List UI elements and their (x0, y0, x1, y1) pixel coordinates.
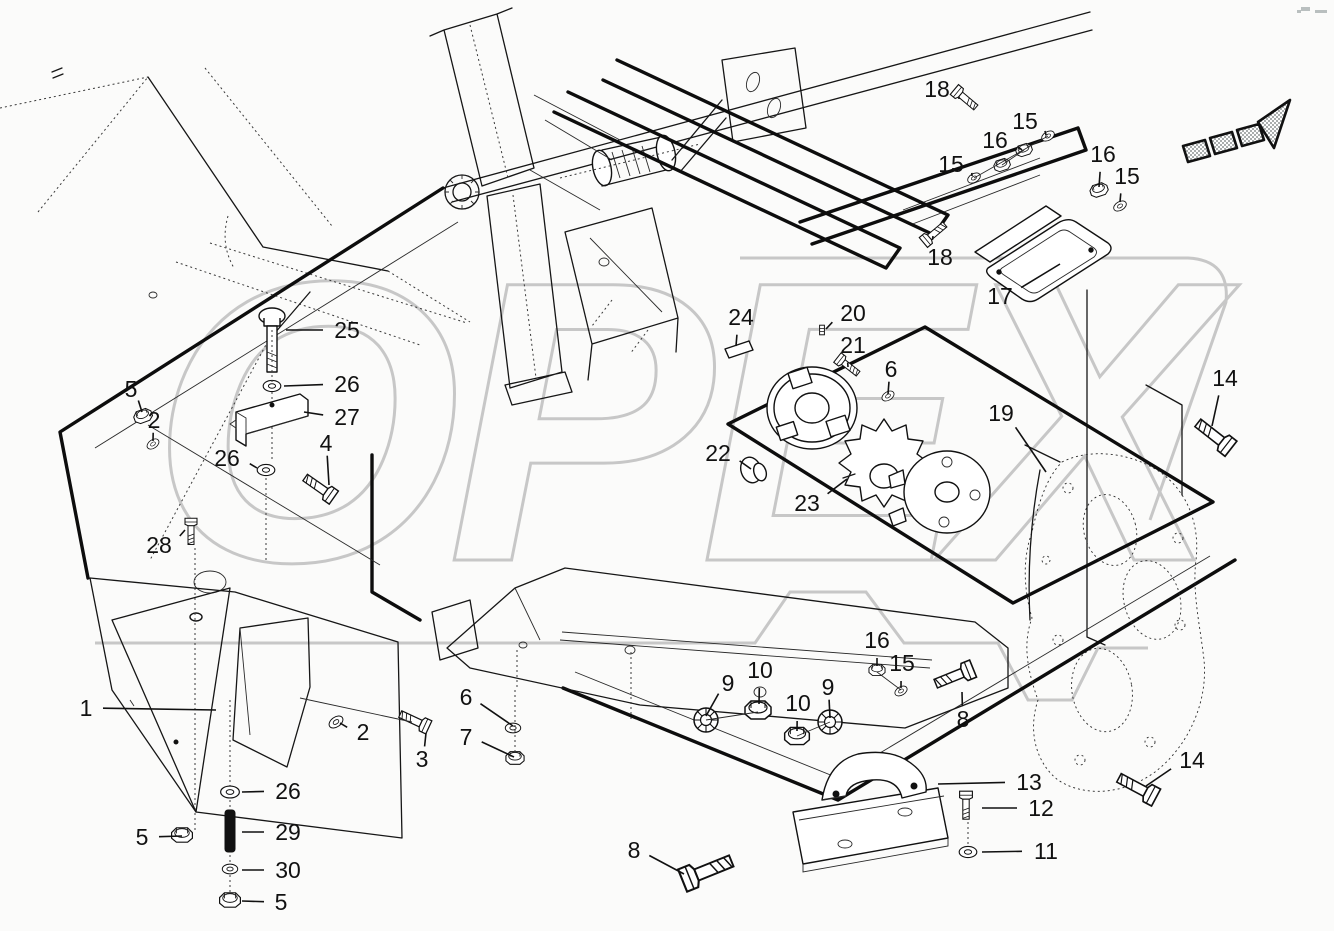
corner-artifact (1297, 7, 1327, 13)
arrow-tail-segment (1210, 132, 1237, 154)
washer-2b (327, 714, 345, 731)
callout-label-2: 2 (357, 719, 370, 745)
callout-label-19: 19 (988, 400, 1014, 426)
callout-leader-14 (1212, 395, 1219, 426)
callout-label-7: 7 (460, 724, 473, 750)
callout-label-5: 5 (275, 889, 288, 915)
callout-label-16: 16 (864, 627, 890, 653)
parts-diagram-page: OPEX (0, 0, 1334, 931)
callout-label-9: 9 (822, 674, 835, 700)
callout-leader-5 (242, 901, 264, 902)
callout-leader-13 (938, 782, 1005, 784)
callout-leader-9 (829, 700, 830, 718)
washer-30 (222, 864, 237, 874)
nut-5b (172, 828, 193, 842)
callout-label-11: 11 (1034, 838, 1058, 864)
callout-label-6: 6 (460, 684, 473, 710)
callout-label-27: 27 (334, 404, 360, 430)
bolt-3 (397, 708, 432, 734)
callout-leader-16 (1099, 172, 1100, 187)
nut-10a (745, 701, 771, 719)
callout-label-24: 24 (728, 304, 754, 330)
callout-label-16: 16 (1090, 141, 1116, 167)
bolt-18a (950, 85, 980, 113)
callout-leader-26 (242, 791, 264, 792)
callout-leader-18 (932, 236, 933, 240)
callout-label-26: 26 (334, 371, 360, 397)
washer-26c (221, 786, 240, 798)
callout-label-6: 6 (885, 356, 898, 382)
callout-label-10: 10 (747, 657, 773, 683)
callout-label-29: 29 (275, 819, 301, 845)
callout-label-13: 13 (1016, 769, 1042, 795)
nut-16c (869, 664, 885, 675)
callout-label-22: 22 (705, 440, 731, 466)
callout-label-25: 25 (334, 317, 360, 343)
callout-leader-11 (982, 851, 1022, 852)
washer-26a (263, 380, 281, 391)
callout-label-1: 1 (80, 695, 93, 721)
motor-bracket-13 (793, 752, 977, 872)
washer-6b (505, 723, 520, 733)
callout-leader-15 (1120, 193, 1121, 202)
exploded-parts-drawing: OPEX (0, 0, 1334, 931)
callout-label-5: 5 (125, 376, 138, 402)
callout-label-14: 14 (1179, 747, 1205, 773)
callout-label-18: 18 (927, 244, 953, 270)
washer-28 (190, 613, 202, 621)
callout-leader-14 (1146, 769, 1171, 786)
callout-label-16: 16 (982, 127, 1008, 153)
callout-label-18: 18 (924, 76, 950, 102)
nut-7 (506, 752, 524, 765)
bottom-left-stack (172, 698, 432, 907)
direction-arrow (1183, 100, 1290, 162)
callout-leader-7 (482, 742, 514, 757)
callout-leader-6 (480, 704, 513, 726)
bolt-12 (960, 791, 973, 819)
spring-pin-29 (225, 810, 235, 852)
callout-label-20: 20 (840, 300, 866, 326)
callout-label-2: 2 (148, 407, 161, 433)
callout-label-10: 10 (785, 690, 811, 716)
callout-label-26: 26 (275, 778, 301, 804)
callout-label-15: 15 (1114, 163, 1140, 189)
callout-label-8: 8 (628, 837, 641, 863)
callout-label-5: 5 (136, 824, 149, 850)
callout-label-26: 26 (214, 445, 240, 471)
callout-label-28: 28 (146, 532, 172, 558)
callout-label-4: 4 (320, 430, 333, 456)
callout-label-12: 12 (1028, 795, 1054, 821)
callout-label-3: 3 (416, 746, 429, 772)
arrow-tail-segment (1183, 140, 1210, 162)
bolt-14b (1114, 769, 1160, 806)
callout-leader-6 (888, 382, 889, 394)
callout-label-21: 21 (840, 332, 866, 358)
washer-11 (959, 846, 977, 857)
nut-5c (220, 893, 241, 907)
washer-26b (257, 464, 275, 475)
callout-label-9: 9 (722, 670, 735, 696)
callout-leader-1 (103, 708, 216, 710)
callout-leader-15 (1045, 131, 1046, 135)
callout-leader-5 (159, 836, 182, 837)
callout-label-17: 17 (987, 283, 1013, 309)
callout-label-23: 23 (794, 490, 820, 516)
callout-label-14: 14 (1212, 365, 1238, 391)
callout-label-15: 15 (1012, 108, 1038, 134)
coupling-hub-left (767, 367, 857, 449)
set-screw-20 (820, 325, 825, 335)
bolt-8a (678, 850, 736, 892)
callout-label-8: 8 (957, 706, 970, 732)
bolt-8b (932, 660, 976, 692)
callout-label-15: 15 (938, 151, 964, 177)
callout-leader-3 (425, 733, 426, 746)
callout-label-30: 30 (275, 857, 301, 883)
callout-leader-2 (340, 723, 347, 727)
callout-leader-24 (736, 335, 737, 346)
callout-label-15: 15 (889, 650, 915, 676)
callout-leader-8 (649, 856, 684, 874)
